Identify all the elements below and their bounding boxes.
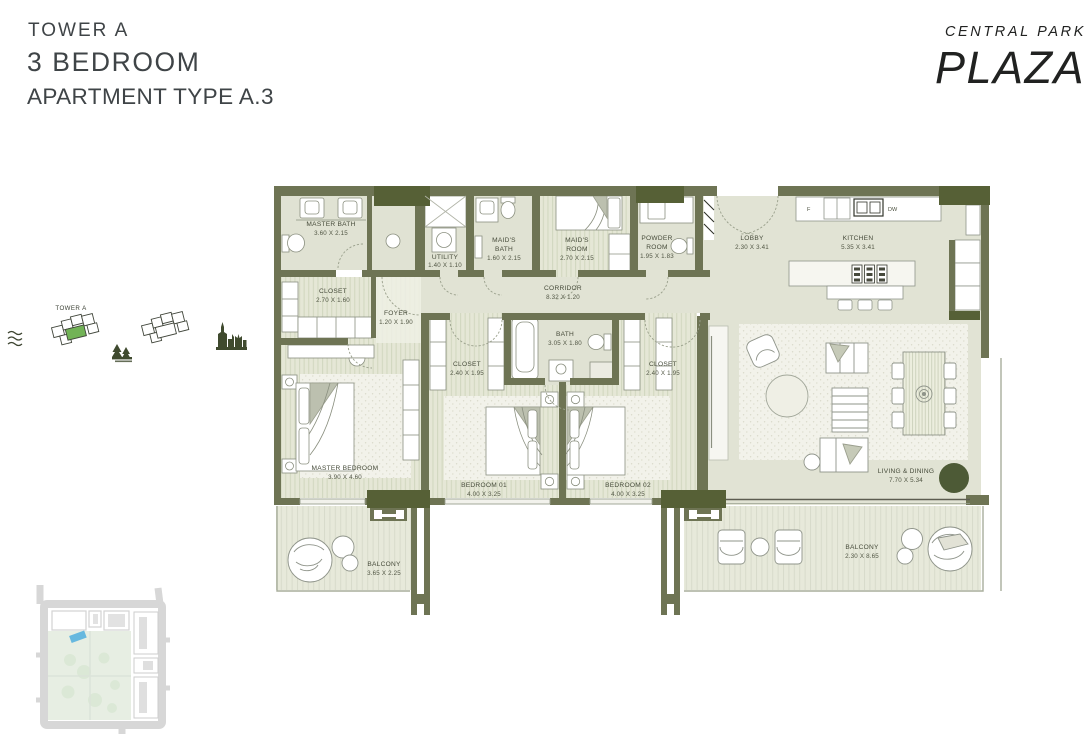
svg-text:4.00 X 3.25: 4.00 X 3.25 [611, 491, 645, 498]
svg-text:2.70 X 1.60: 2.70 X 1.60 [316, 297, 350, 304]
svg-text:UTILITY: UTILITY [432, 254, 459, 261]
svg-text:LIVING & DINING: LIVING & DINING [878, 468, 935, 475]
svg-text:CLOSET: CLOSET [453, 361, 481, 368]
svg-text:ROOM: ROOM [646, 244, 668, 251]
svg-text:3.05 X 1.80: 3.05 X 1.80 [548, 340, 582, 347]
svg-text:1.60 X 2.15: 1.60 X 2.15 [487, 255, 521, 262]
svg-text:CORRIDOR: CORRIDOR [544, 285, 582, 292]
svg-text:APARTMENT TYPE A.3: APARTMENT TYPE A.3 [27, 84, 274, 109]
svg-text:2.40 X 1.95: 2.40 X 1.95 [646, 370, 680, 377]
svg-text:TOWER A: TOWER A [55, 305, 87, 312]
svg-text:2.70 X 2.15: 2.70 X 2.15 [560, 255, 594, 262]
svg-text:1.40 X 1.10: 1.40 X 1.10 [428, 262, 462, 269]
svg-text:MAID'S: MAID'S [492, 237, 516, 244]
svg-text:2.40 X 1.95: 2.40 X 1.95 [450, 370, 484, 377]
svg-text:5.35 X 3.41: 5.35 X 3.41 [841, 244, 875, 251]
svg-text:POWDER: POWDER [641, 235, 672, 242]
svg-text:8.32 X 1.20: 8.32 X 1.20 [546, 294, 580, 301]
svg-text:CENTRAL PARK: CENTRAL PARK [945, 24, 1086, 40]
svg-text:LOBBY: LOBBY [740, 235, 764, 242]
svg-text:2.30 X 8.65: 2.30 X 8.65 [845, 553, 879, 560]
svg-text:3.90 X 4.60: 3.90 X 4.60 [328, 474, 362, 481]
svg-text:7.70 X 5.34: 7.70 X 5.34 [889, 477, 923, 484]
svg-text:3.60 X 2.15: 3.60 X 2.15 [314, 230, 348, 237]
svg-text:3.65 X 2.25: 3.65 X 2.25 [367, 570, 401, 577]
svg-text:1.95 X 1.83: 1.95 X 1.83 [640, 253, 674, 260]
svg-text:3 BEDROOM: 3 BEDROOM [27, 47, 200, 77]
svg-text:BALCONY: BALCONY [845, 544, 879, 551]
svg-text:BEDROOM 02: BEDROOM 02 [605, 482, 651, 489]
svg-text:BATH: BATH [556, 331, 574, 338]
svg-text:BEDROOM 01: BEDROOM 01 [461, 482, 507, 489]
svg-text:BATH: BATH [495, 246, 513, 253]
svg-text:BALCONY: BALCONY [367, 561, 401, 568]
svg-text:MAID'S: MAID'S [565, 237, 589, 244]
svg-text:MASTER BEDROOM: MASTER BEDROOM [312, 465, 379, 472]
svg-text:DW: DW [888, 207, 898, 213]
svg-text:1.20 X 1.90: 1.20 X 1.90 [379, 319, 413, 326]
svg-text:TOWER A: TOWER A [28, 20, 129, 41]
svg-text:CLOSET: CLOSET [319, 288, 347, 295]
svg-text:CLOSET: CLOSET [649, 361, 677, 368]
svg-text:FOYER: FOYER [384, 310, 408, 317]
svg-text:2.30 X 3.41: 2.30 X 3.41 [735, 244, 769, 251]
svg-text:PLAZA: PLAZA [935, 42, 1085, 93]
svg-text:ROOM: ROOM [566, 246, 588, 253]
svg-text:KITCHEN: KITCHEN [843, 235, 874, 242]
svg-text:4.00 X 3.25: 4.00 X 3.25 [467, 491, 501, 498]
svg-text:MASTER BATH: MASTER BATH [306, 221, 355, 228]
